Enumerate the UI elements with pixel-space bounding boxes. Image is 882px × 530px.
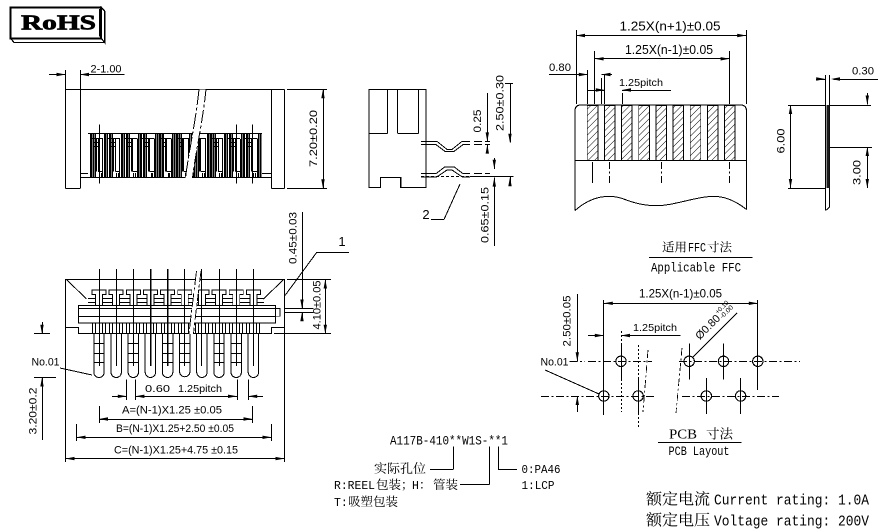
svg-text:3.00: 3.00 [852,160,864,185]
svg-text:A117B-410**W1S-**1: A117B-410**W1S-**1 [390,435,508,449]
svg-text:1:LCP: 1:LCP [522,480,555,493]
svg-text:0.65±0.15: 0.65±0.15 [480,187,492,243]
svg-text:B=(N-1)X1.25+2.50 ±0.05: B=(N-1)X1.25+2.50 ±0.05 [116,423,234,435]
svg-text:R:REEL: R:REEL [334,480,375,493]
svg-text:0.25: 0.25 [472,110,484,133]
svg-text:0:PA46: 0:PA46 [522,464,561,477]
svg-text:H: H [412,480,419,493]
svg-text:0.45±0.03: 0.45±0.03 [288,212,300,264]
svg-text:1: 1 [338,234,345,249]
svg-text:1.25pitch: 1.25pitch [633,322,677,334]
svg-text:T:: T: [334,497,348,510]
svg-text:2.50±0.30: 2.50±0.30 [495,75,507,131]
svg-text:PCB Layout: PCB Layout [669,445,730,459]
svg-text:Current rating: 1.0A: Current rating: 1.0A [714,494,869,510]
svg-text:1.25X(n-1)±0.05: 1.25X(n-1)±0.05 [625,43,713,57]
svg-text:No.01: No.01 [541,357,569,369]
svg-text:A=(N-1)X1.25 ±0.05: A=(N-1)X1.25 ±0.05 [122,405,222,417]
svg-text:6.00: 6.00 [776,129,788,154]
svg-text:1.25pitch: 1.25pitch [619,77,663,89]
svg-text:4.10±0.05: 4.10±0.05 [311,281,323,330]
svg-text:2: 2 [422,207,429,222]
svg-text:7.20±0.20: 7.20±0.20 [308,110,320,167]
svg-text:PCB: PCB [669,427,697,442]
svg-text:Voltage rating: 200V: Voltage rating: 200V [714,515,869,530]
svg-text:C=(N-1)X1.25+4.75 ±0.15: C=(N-1)X1.25+4.75 ±0.15 [114,445,238,457]
svg-text:0.80: 0.80 [549,62,571,74]
svg-text:FFC: FFC [688,242,706,256]
svg-text:Applicable FFC: Applicable FFC [651,261,741,276]
svg-text:0.60: 0.60 [145,383,170,395]
svg-text:2.50±0.05: 2.50±0.05 [562,296,574,347]
svg-text:No.01: No.01 [32,357,60,369]
svg-text:2-1.00: 2-1.00 [91,64,122,76]
svg-text:1.25X(n+1)±0.05: 1.25X(n+1)±0.05 [620,20,721,34]
svg-text:1.25X(n-1)±0.05: 1.25X(n-1)±0.05 [639,287,722,301]
svg-text:RoHS: RoHS [21,11,96,35]
svg-text:3.20±0.2: 3.20±0.2 [28,388,40,435]
svg-text:1.25pitch: 1.25pitch [178,383,222,395]
svg-text:0.30: 0.30 [852,66,874,78]
